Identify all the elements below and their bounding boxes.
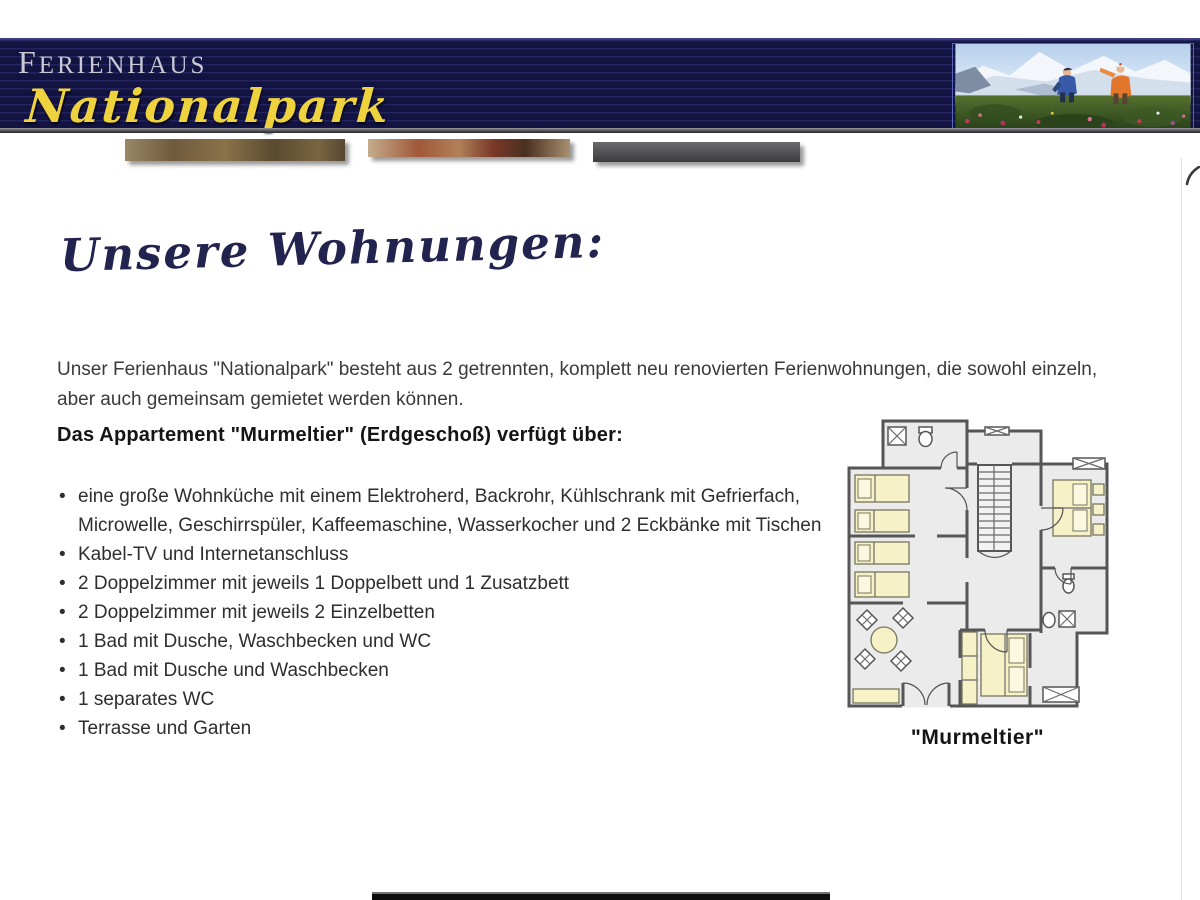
- window-bottom-right: [1043, 687, 1079, 702]
- content-edge-line: [1181, 158, 1182, 900]
- toilet-top-icon: [919, 427, 932, 447]
- bed-single-4: [855, 572, 909, 597]
- feature-item: 1 Bad mit Dusche, Waschbecken und WC: [57, 627, 837, 656]
- header-bottom-edge: [0, 128, 1200, 133]
- bed-double-center: [981, 634, 1027, 696]
- page-title-script: Unsere Wohnungen:: [59, 215, 605, 282]
- feature-item: Terrasse und Garten: [57, 714, 837, 743]
- thumbnail-photo-1: [125, 139, 345, 161]
- bottom-image-edge: [372, 892, 830, 900]
- brand-ferienhaus-text: Ferienhaus: [18, 44, 390, 81]
- header-alpine-photo: [953, 44, 1193, 128]
- bench: [853, 689, 899, 703]
- apartment-heading: Das Appartement "Murmeltier" (Erdgeschoß…: [57, 424, 623, 447]
- wardrobe: [962, 632, 977, 704]
- floorplan-caption: "Murmeltier": [845, 726, 1110, 750]
- intro-paragraph: Unser Ferienhaus "Nationalpark" besteht …: [57, 355, 1117, 415]
- brand-nationalpark-text: Nationalpark: [24, 81, 392, 131]
- window-right: [1073, 458, 1105, 469]
- page: Ferienhaus Nationalpark: [0, 0, 1200, 900]
- feature-item: 1 separates WC: [57, 685, 837, 714]
- bed-single-1: [855, 475, 909, 502]
- edge-flourish-mark: [1185, 166, 1200, 186]
- staircase: [978, 465, 1011, 558]
- dining-table: [871, 627, 897, 653]
- shower-right-icon: [1059, 611, 1075, 627]
- feature-list: eine große Wohnküche mit einem Elektrohe…: [57, 482, 837, 743]
- brand-logo: Ferienhaus Nationalpark: [18, 44, 390, 131]
- feature-item: 1 Bad mit Dusche und Waschbecken: [57, 656, 837, 685]
- shower-top-icon: [888, 427, 906, 445]
- thumbnail-photo-3: [593, 142, 800, 162]
- feature-item: 2 Doppelzimmer mit jeweils 1 Doppelbett …: [57, 569, 837, 598]
- floorplan-image: [845, 418, 1110, 713]
- bed-single-3: [855, 542, 909, 564]
- feature-item: 2 Doppelzimmer mit jeweils 2 Einzelbette…: [57, 598, 837, 627]
- thumbnail-photo-2: [368, 139, 570, 157]
- sink-right-icon: [1043, 613, 1055, 628]
- feature-item: eine große Wohnküche mit einem Elektrohe…: [57, 482, 837, 540]
- window-top: [985, 427, 1009, 435]
- site-header: Ferienhaus Nationalpark: [0, 38, 1200, 133]
- bed-single-2: [855, 510, 909, 532]
- feature-item: Kabel-TV und Internetanschluss: [57, 540, 837, 569]
